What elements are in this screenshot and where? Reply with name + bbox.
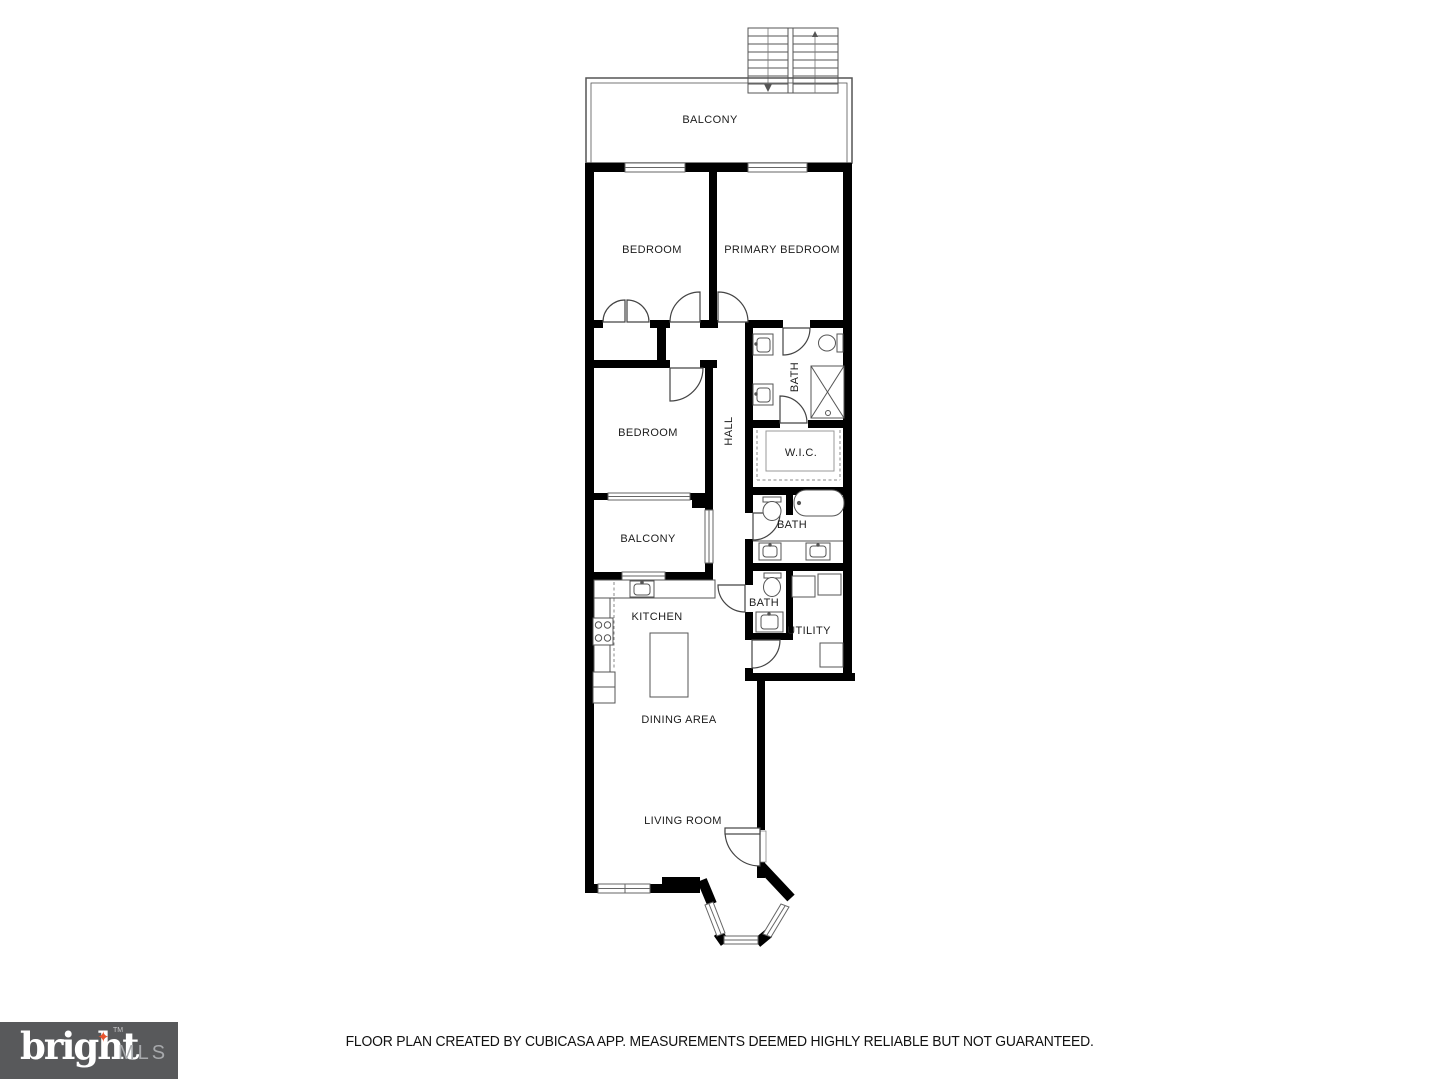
room-label-bath-mid: BATH xyxy=(777,519,807,531)
walls xyxy=(585,163,855,893)
room-label-kitchen: KITCHEN xyxy=(631,611,682,623)
room-label-bedroom-mid: BEDROOM xyxy=(618,427,678,439)
floor-plan-page: BALCONY BEDROOM PRIMARY BEDROOM BEDROOM … xyxy=(0,0,1440,1080)
logo-trademark: TM xyxy=(113,1027,123,1034)
room-label-wic: W.I.C. xyxy=(785,447,817,459)
kitchen-fixtures xyxy=(593,580,715,703)
room-label-dining: DINING AREA xyxy=(641,714,716,726)
room-label-balcony-mid: BALCONY xyxy=(620,533,675,545)
floor-plan-drawing xyxy=(0,0,1440,1080)
logo-suffix-text: MLS xyxy=(118,1042,168,1065)
utility-appliances xyxy=(792,574,843,667)
room-label-hall: HALL xyxy=(723,416,735,445)
room-label-utility: UTILITY xyxy=(787,625,831,637)
room-label-bedroom-top: BEDROOM xyxy=(622,244,682,256)
logo-star-icon: ✦ xyxy=(97,1028,110,1046)
room-label-living: LIVING ROOM xyxy=(644,815,722,827)
room-label-bath-primary: BATH xyxy=(789,362,801,392)
room-label-balcony-top: BALCONY xyxy=(682,114,737,126)
disclaimer-text-span: FLOOR PLAN CREATED BY CUBICASA APP. MEAS… xyxy=(346,1034,1094,1050)
disclaimer-text: FLOOR PLAN CREATED BY CUBICASA APP. MEAS… xyxy=(0,1034,1440,1050)
room-label-primary-bedroom: PRIMARY BEDROOM xyxy=(724,244,840,256)
room-label-bath-lower: BATH xyxy=(749,597,779,609)
brightmls-logo: bright ✦ TM MLS xyxy=(0,1022,178,1079)
